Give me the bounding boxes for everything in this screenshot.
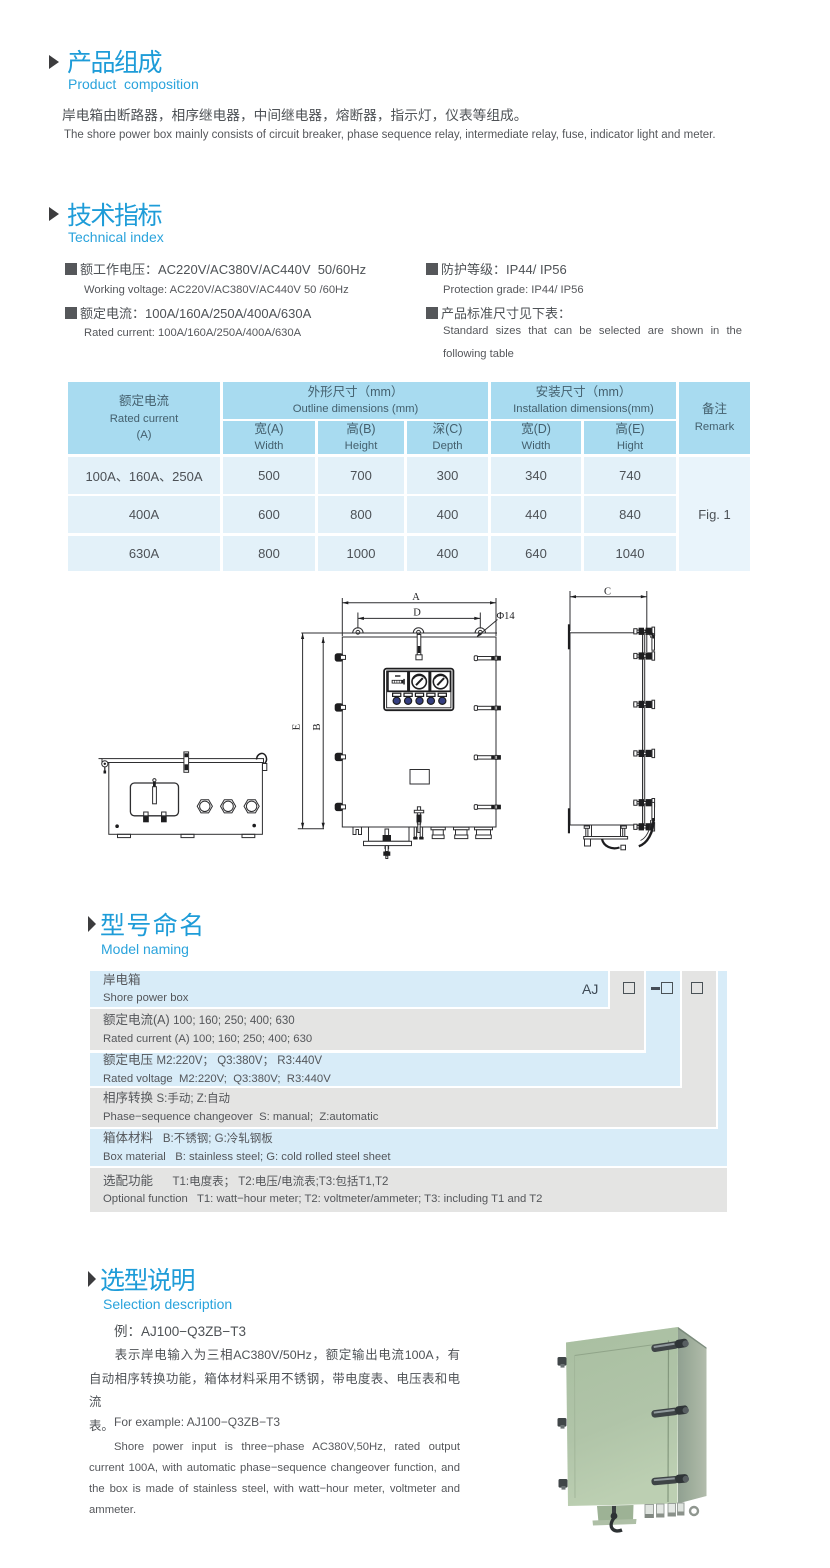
svg-text:A: A [412, 592, 420, 603]
svg-text:C: C [604, 586, 611, 597]
svg-text:E: E [292, 724, 303, 730]
svg-text:B: B [312, 723, 323, 730]
svg-text:D: D [413, 608, 421, 619]
svg-text:Φ14: Φ14 [497, 611, 516, 622]
